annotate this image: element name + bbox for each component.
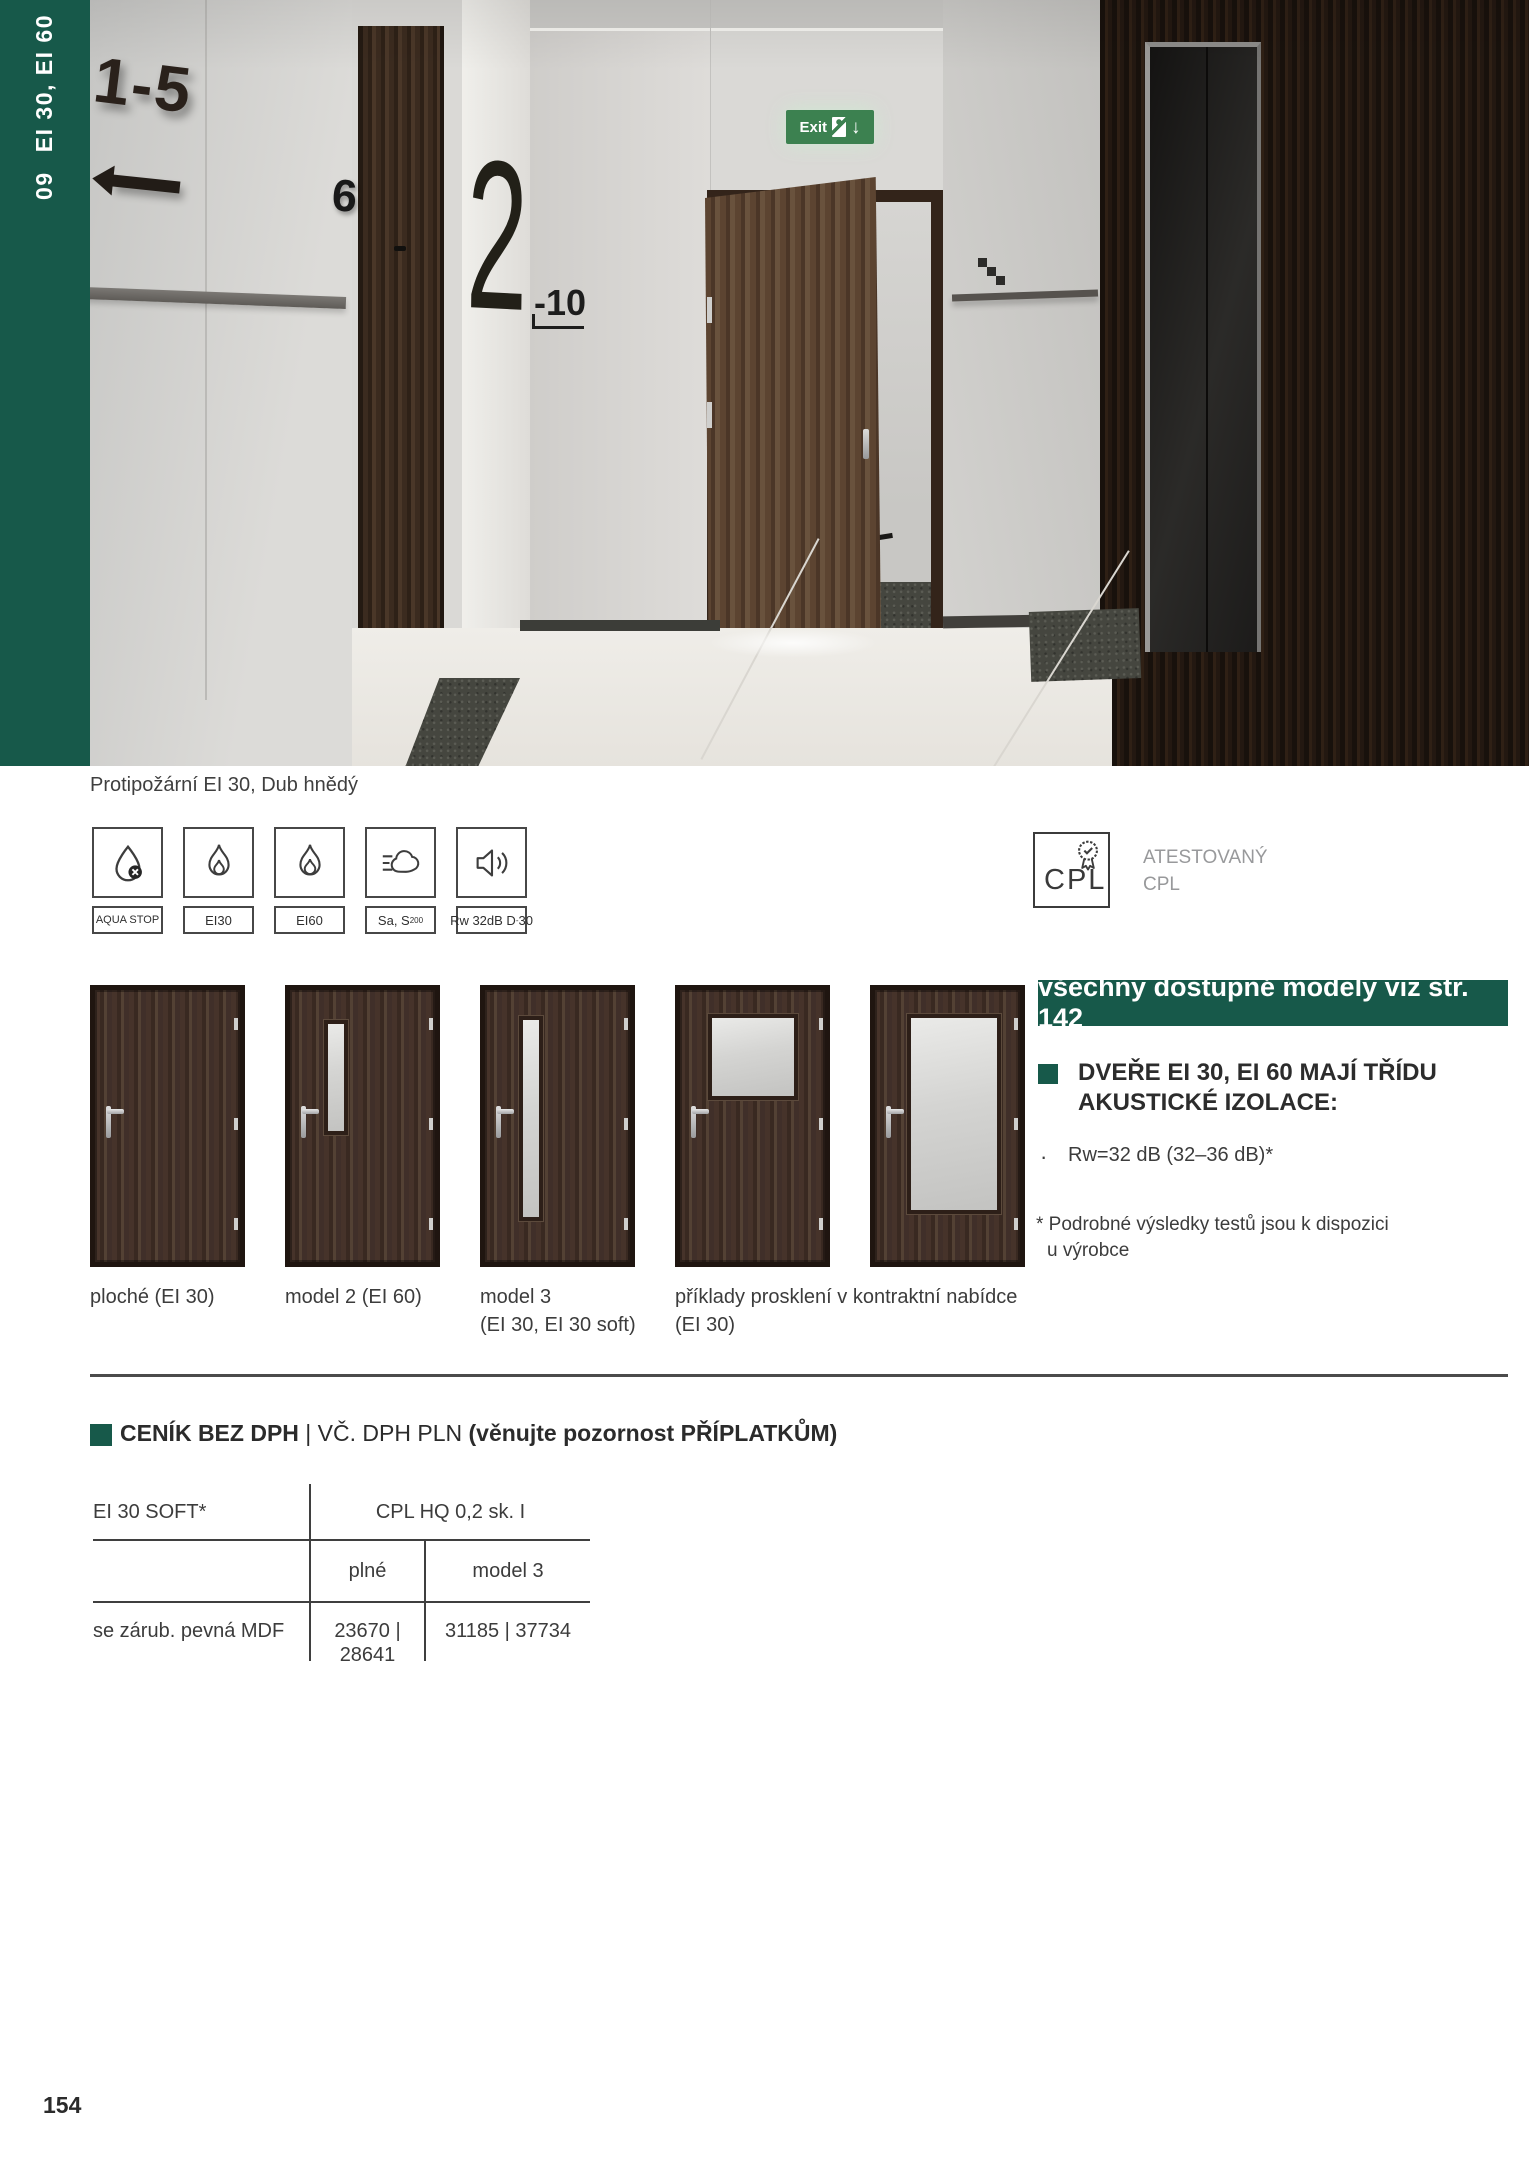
product-door-model3 xyxy=(480,985,635,1267)
acoustic-icon xyxy=(456,827,527,898)
photo-sign-10: -10 xyxy=(534,282,586,324)
door-hinge xyxy=(429,1218,433,1230)
cert-line2: CPL xyxy=(1143,871,1268,898)
door-label: model 2 (EI 60) xyxy=(285,1283,422,1311)
door-handle xyxy=(886,1106,891,1138)
door-handle xyxy=(106,1106,111,1138)
door-hinge xyxy=(1014,1118,1018,1130)
photo-open-door-handle xyxy=(863,429,869,459)
door-label: příklady prosklení v kontraktní nabídce(… xyxy=(675,1283,1017,1339)
product-door-model2 xyxy=(285,985,440,1267)
page-number: 154 xyxy=(43,2092,81,2119)
photo-elevator xyxy=(1145,42,1261,652)
stairs-pictogram-icon xyxy=(978,258,987,267)
spec-smoke: Sa, S200 xyxy=(365,827,436,898)
table-header-left: EI 30 SOFT* xyxy=(93,1500,206,1524)
photo-sign-2: 2 xyxy=(465,128,529,343)
table-colgroup-header: CPL HQ 0,2 sk. I xyxy=(311,1500,590,1524)
photo-sign-1-5: 1-5 xyxy=(90,42,197,127)
photo-sign-10-tick xyxy=(532,314,535,329)
photo-sign-10-line xyxy=(532,326,584,329)
spec-label: Sa, S200 xyxy=(365,906,436,934)
catalog-page: 09 EI 30, EI 60 1-5 6 2 -10 xyxy=(0,0,1529,2160)
door-hinge xyxy=(819,1218,823,1230)
spec-label: AQUA STOP xyxy=(92,906,163,934)
fire-ei60-icon xyxy=(274,827,345,898)
exit-sign: Exit ↓ xyxy=(786,110,874,144)
photo-side-wall xyxy=(530,30,710,630)
door-glass xyxy=(324,1020,348,1135)
table-row-label: se zárub. pevná MDF xyxy=(93,1619,284,1643)
bullet-marker: · xyxy=(1040,1144,1047,1170)
photo-light-pool xyxy=(708,628,878,658)
photo-elevator-seam xyxy=(1206,47,1208,652)
spec-label: EI30 xyxy=(183,906,254,934)
photo-overdoor-seam xyxy=(710,0,711,192)
smoke-icon xyxy=(365,827,436,898)
models-banner: všechny dostupné modely viz str. 142 xyxy=(1038,980,1508,1026)
running-man-icon xyxy=(832,117,846,137)
photo-hinge xyxy=(707,297,712,323)
door-hinge xyxy=(234,1218,238,1230)
spec-acoustic: Rw 32dB D-30 xyxy=(456,827,527,898)
exit-down-arrow-icon: ↓ xyxy=(851,118,861,137)
product-door-glazing-large xyxy=(870,985,1025,1267)
spec-ei30: EI30 xyxy=(183,827,254,898)
hallway-photo: 1-5 6 2 -10 Exit ↓ xyxy=(90,0,1529,766)
door-hinge xyxy=(819,1018,823,1030)
door-label: ploché (EI 30) xyxy=(90,1283,215,1311)
photo-hinge xyxy=(707,402,712,428)
table-col1-header: plné xyxy=(311,1559,424,1583)
photo-door-6-handle xyxy=(394,246,406,251)
cert-line1: ATESTOVANÝ xyxy=(1143,844,1268,871)
chapter-number: 09 xyxy=(31,171,57,200)
cpl-badge: CPL xyxy=(1033,832,1110,908)
door-hinge xyxy=(429,1018,433,1030)
door-handle xyxy=(691,1106,696,1138)
photo-wall-seam xyxy=(205,0,207,700)
acoustics-heading: DVEŘE EI 30, EI 60 MAJÍ TŘÍDU AKUSTICKÉ … xyxy=(1078,1058,1437,1118)
door-glass xyxy=(519,1016,543,1221)
rosette-icon xyxy=(1072,837,1104,884)
spec-aqua-stop: AQUA STOP xyxy=(92,827,163,898)
table-col2-header: model 3 xyxy=(426,1559,590,1583)
photo-caption: Protipožární EI 30, Dub hnědý xyxy=(90,774,358,797)
chapter-label: 09 EI 30, EI 60 xyxy=(31,14,58,200)
acoustics-footnote-line2: u výrobce xyxy=(1047,1240,1129,1262)
door-hinge xyxy=(624,1018,628,1030)
green-heading-square xyxy=(90,1424,112,1446)
product-door-glazing-square xyxy=(675,985,830,1267)
door-hinge xyxy=(1014,1018,1018,1030)
door-hinge xyxy=(234,1018,238,1030)
table-price-2: 31185 | 37734 xyxy=(426,1619,590,1643)
door-hinge xyxy=(819,1118,823,1130)
door-glass xyxy=(907,1014,1001,1214)
table-hline xyxy=(93,1539,590,1541)
photo-baseboard xyxy=(520,620,720,631)
acoustics-footnote-line1: * Podrobné výsledky testů jsou k dispozi… xyxy=(1036,1214,1389,1236)
table-price-1: 23670 | 28641 xyxy=(311,1619,424,1667)
spec-ei60: EI60 xyxy=(274,827,345,898)
section-divider xyxy=(90,1374,1508,1377)
door-label: model 3(EI 30, EI 30 soft) xyxy=(480,1283,636,1339)
table-hline xyxy=(93,1601,590,1603)
aqua-stop-icon xyxy=(92,827,163,898)
door-hinge xyxy=(624,1118,628,1130)
green-bullet-square xyxy=(1038,1064,1058,1084)
cert-text: ATESTOVANÝ CPL xyxy=(1143,844,1268,898)
door-handle xyxy=(301,1106,306,1138)
door-hinge xyxy=(1014,1218,1018,1230)
chapter-title: EI 30, EI 60 xyxy=(31,14,57,152)
door-hinge xyxy=(234,1118,238,1130)
door-hinge xyxy=(624,1218,628,1230)
door-glass xyxy=(708,1014,798,1100)
spec-label: Rw 32dB D-30 xyxy=(456,906,527,934)
exit-sign-label: Exit xyxy=(799,119,827,136)
photo-sign-6: 6 xyxy=(330,169,359,223)
fire-ei30-icon xyxy=(183,827,254,898)
pricing-heading: CENÍK BEZ DPH | VČ. DPH PLN (věnujte poz… xyxy=(120,1420,837,1447)
door-handle xyxy=(496,1106,501,1138)
door-hinge xyxy=(429,1118,433,1130)
acoustics-bullet: Rw=32 dB (32–36 dB)* xyxy=(1068,1144,1273,1167)
product-door-ploche xyxy=(90,985,245,1267)
spec-label: EI60 xyxy=(274,906,345,934)
chapter-sidebar: 09 EI 30, EI 60 xyxy=(0,0,90,766)
photo-open-door xyxy=(705,177,881,645)
